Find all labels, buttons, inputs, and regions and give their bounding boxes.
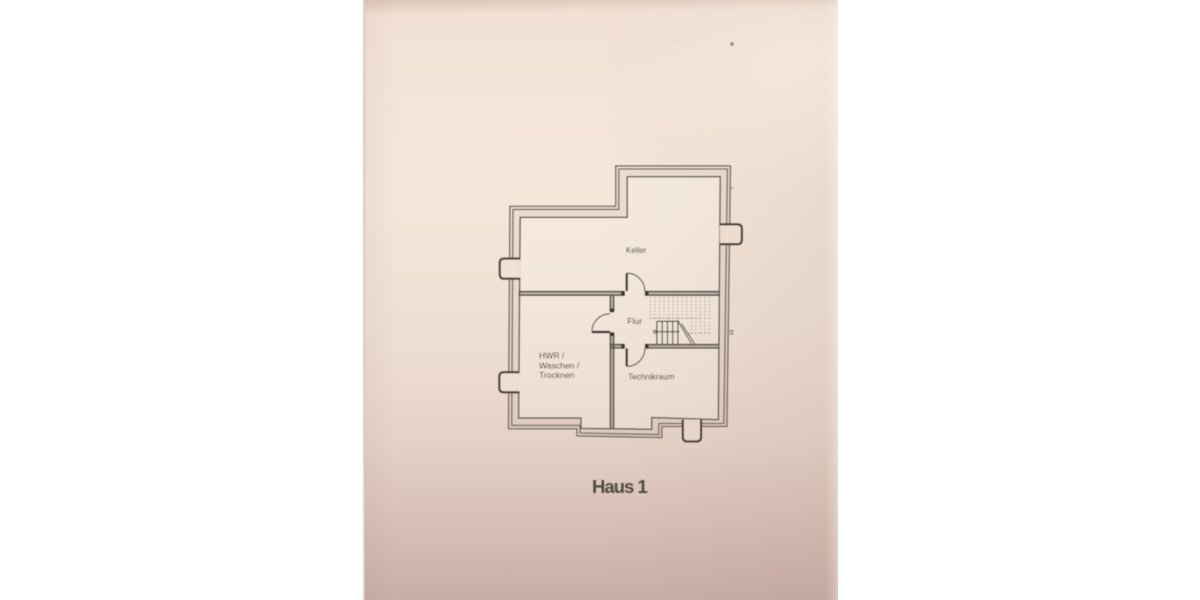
svg-text:Haus 1: Haus 1 [592,476,647,497]
svg-text:Flur: Flur [627,316,642,326]
svg-text:HWR /: HWR / [539,351,565,361]
svg-text:Keller: Keller [626,246,647,255]
svg-text:Trocknen: Trocknen [539,370,575,380]
svg-text:Technikraum: Technikraum [628,373,675,382]
